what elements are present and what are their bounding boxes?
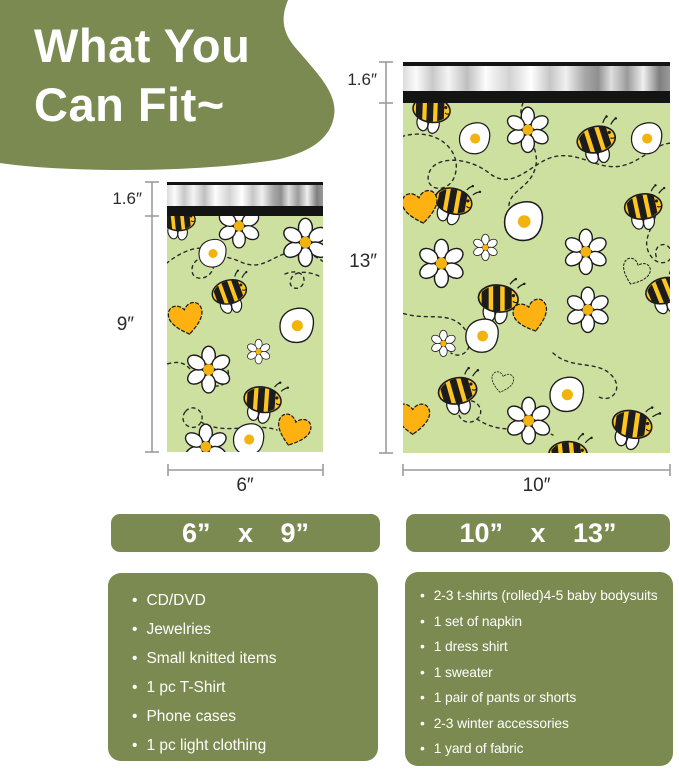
fit-item: Jewelries: [132, 621, 378, 639]
product-infographic: What You Can Fit~: [0, 0, 679, 769]
large-size-badge: 10” x 13”: [406, 514, 670, 552]
fried-egg-icon: [199, 239, 226, 267]
fit-item: 1 yard of fabric: [420, 741, 673, 756]
fried-egg-icon: [505, 202, 543, 241]
small-body-height-label: 9″: [96, 315, 134, 335]
fried-egg-icon: [459, 123, 489, 154]
fit-item: 1 set of napkin: [420, 614, 673, 629]
large-fits-list: 2-3 t-shirts (rolled)4-5 baby bodysuits1…: [405, 572, 673, 756]
flap-silver-foil: [403, 66, 670, 91]
fit-item: Small knitted items: [132, 650, 378, 668]
large-body-height-label: 13″: [327, 252, 377, 272]
flap-silver-foil: [167, 185, 323, 206]
small-flap-height-label: 1.6″: [94, 189, 142, 209]
large-width-label: 10″: [403, 476, 670, 496]
fried-egg-icon: [631, 123, 661, 154]
small-fits-panel: CD/DVDJewelriesSmall knitted items1 pc T…: [108, 573, 378, 761]
fit-item: 1 pc light clothing: [132, 737, 378, 755]
small-fits-list: CD/DVDJewelriesSmall knitted items1 pc T…: [108, 573, 378, 755]
fried-egg-icon: [550, 377, 584, 411]
large-mailer-bag-image: [403, 62, 670, 453]
title-line2: Can Fit~: [34, 75, 334, 134]
fit-item: 1 pc T-Shirt: [132, 679, 378, 697]
fit-item: 2-3 t-shirts (rolled)4-5 baby bodysuits: [420, 588, 673, 603]
small-size-badge: 6” x 9”: [111, 514, 380, 552]
page-title: What You Can Fit~: [34, 16, 334, 134]
small-width-label: 6″: [167, 476, 323, 496]
large-flap-height-label: 1.6″: [329, 70, 377, 90]
fit-item: Phone cases: [132, 708, 378, 726]
fit-item: 2-3 winter accessories: [420, 716, 673, 731]
fried-egg-icon: [466, 319, 498, 352]
fit-item: 1 pair of pants or shorts: [420, 690, 673, 705]
fit-item: 1 sweater: [420, 665, 673, 680]
small-mailer-bag-image: [167, 182, 323, 452]
fit-item: CD/DVD: [132, 592, 378, 610]
fit-item: 1 dress shirt: [420, 639, 673, 654]
title-line1: What You: [34, 16, 334, 75]
large-fits-panel: 2-3 t-shirts (rolled)4-5 baby bodysuits1…: [405, 572, 673, 766]
fried-egg-icon: [233, 424, 263, 452]
fried-egg-icon: [280, 308, 314, 342]
